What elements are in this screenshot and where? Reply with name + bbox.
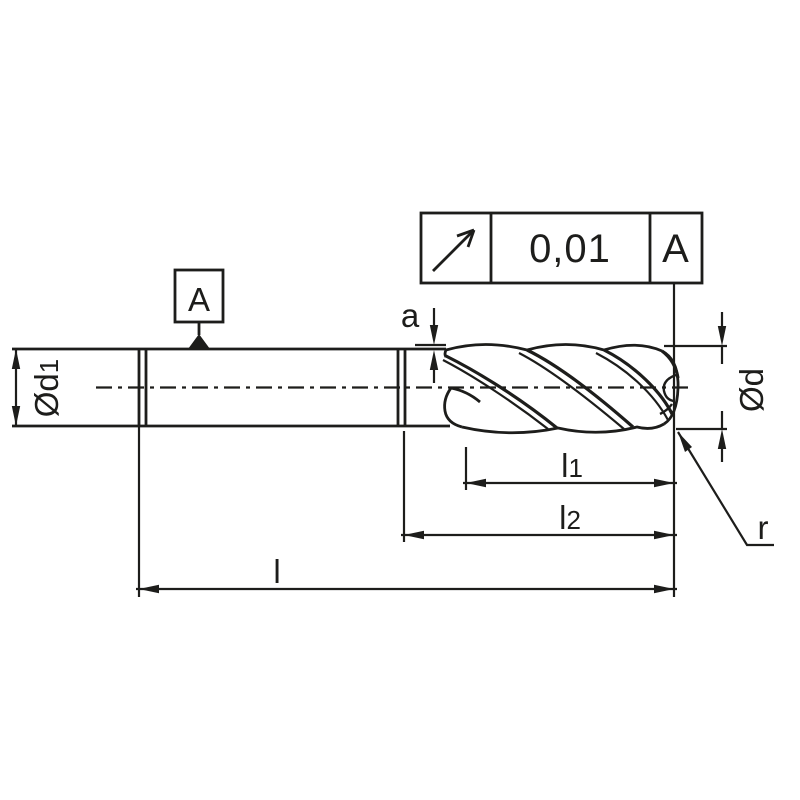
datum-triangle-icon	[188, 334, 210, 349]
arrow-up-left-icon	[678, 432, 692, 452]
arrow-left-icon	[404, 531, 424, 539]
flute-top-scallops	[446, 345, 662, 352]
helix-line-1	[443, 360, 548, 429]
arrow-down-icon	[718, 326, 726, 346]
dimension-l2: l2	[401, 431, 677, 542]
dimension-shank-diameter: Ød1	[12, 349, 65, 426]
arrow-right-icon	[654, 585, 674, 593]
arrow-up-icon	[430, 350, 438, 370]
l2-label: l2	[559, 499, 581, 536]
arrow-up-icon	[12, 349, 20, 369]
a-label: a	[401, 297, 420, 334]
datum-reference: A	[662, 227, 690, 271]
tolerance-frame: 0,01 A	[421, 213, 702, 283]
dimension-flute-length: l1	[463, 447, 677, 490]
flute-bottom-scallops	[462, 424, 664, 433]
arrow-left-icon	[466, 479, 486, 487]
arrow-down-icon	[430, 325, 438, 345]
corner-radius-leader: r	[678, 432, 774, 546]
l1-label: l1	[561, 447, 583, 484]
runout-arrow-icon	[433, 230, 474, 271]
arrow-left-icon	[139, 585, 159, 593]
dimension-a: a	[401, 297, 438, 383]
arrow-down-icon	[12, 406, 20, 426]
flute-start-lobe	[445, 388, 462, 427]
flute-pattern	[443, 345, 678, 433]
arrow-right-icon	[654, 531, 674, 539]
arrow-right-icon	[654, 479, 674, 487]
cutting-diameter-label: Ød	[733, 368, 770, 412]
flute-leading-tip	[445, 350, 446, 357]
technical-drawing: Ød1 Ød a l1 l2	[0, 0, 800, 800]
tolerance-value: 0,01	[529, 227, 611, 271]
l-label: l	[273, 553, 280, 590]
shank-outline	[12, 345, 450, 426]
datum-a-flag: A	[175, 270, 223, 349]
flute-start-lobe-edge	[451, 388, 480, 402]
runout-arrow-shaft	[433, 230, 474, 271]
arrow-up-icon	[718, 429, 726, 449]
shank-diameter-label: Ød1	[28, 359, 65, 418]
datum-flag-label: A	[188, 281, 210, 318]
r-label: r	[758, 509, 769, 546]
